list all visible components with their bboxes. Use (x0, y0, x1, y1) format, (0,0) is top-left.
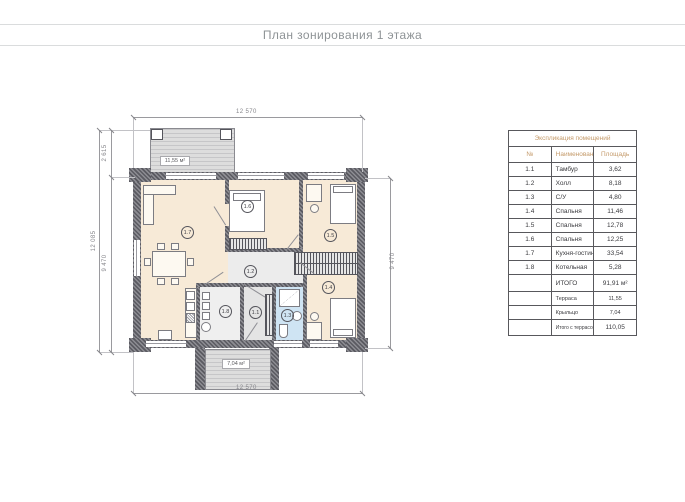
table-row: 1.3 С/У 4,80 (509, 191, 637, 205)
table-row: 1.4 Спальня 11,46 (509, 205, 637, 219)
table-row: 1.2 Холл 8,18 (509, 177, 637, 191)
window (308, 173, 344, 179)
radiator-16 (229, 238, 267, 250)
extension-line (111, 177, 135, 178)
extension-line (365, 178, 391, 179)
col-header-num: № (509, 147, 552, 163)
wall-boiler-top (196, 283, 244, 287)
extension-line (99, 130, 150, 131)
room-marker: 1.5 (324, 229, 337, 242)
pilaster (346, 338, 368, 352)
boiler-unit (202, 292, 210, 300)
extension-line (362, 352, 363, 393)
table-row: 1.6 Спальня 12,25 (509, 233, 637, 247)
window (238, 173, 284, 179)
kitchen-stove (186, 313, 195, 323)
chair (157, 243, 165, 250)
kitchen-sink (158, 330, 172, 340)
room-marker: 1.3 (281, 309, 294, 322)
dim-label-left-upper: 2 615 (102, 142, 108, 164)
desk-chair (310, 312, 319, 321)
terrace-post (220, 129, 232, 140)
dim-line-left-outer (99, 130, 100, 352)
porch (205, 349, 271, 390)
dim-label-left-outer: 12 085 (91, 229, 97, 253)
room-marker: 1.7 (181, 226, 194, 239)
desk-chair (310, 204, 319, 213)
total-label: ИТОГО (551, 275, 594, 292)
room-marker: 1.8 (219, 305, 232, 318)
legend-table: Экспликация помещений № Наименование Пло… (508, 130, 637, 336)
sofa (143, 194, 154, 225)
wall-boiler-tambour (240, 283, 244, 340)
toilet (279, 324, 288, 338)
extension-line (99, 352, 133, 353)
chair (171, 243, 179, 250)
extra-row: Терраса 11,55 (509, 292, 637, 306)
boiler-unit (202, 302, 210, 310)
porch-wall-left (195, 348, 205, 390)
porch-area-label: 7,04 м² (222, 359, 250, 369)
room-marker: 1.6 (241, 200, 254, 213)
boiler-unit (201, 322, 211, 332)
dim-label-bottom: 12 570 (236, 385, 257, 391)
shower (279, 289, 300, 307)
dining-table (152, 251, 186, 277)
table-row: 1.5 Спальня 12,78 (509, 219, 637, 233)
col-header-area: Площадь (594, 147, 637, 163)
grand-total-value: 110,05 (594, 320, 637, 336)
extension-line (365, 348, 391, 349)
pilaster (346, 168, 368, 182)
boiler-unit (202, 312, 210, 320)
room-marker: 1.4 (322, 281, 335, 294)
dim-line-left-inner (111, 130, 112, 352)
terrace-area-label: 11,55 м² (160, 156, 190, 166)
wall-right (357, 172, 365, 348)
dim-label-right: 9 470 (390, 250, 396, 272)
dim-label-left-lower: 9 470 (102, 252, 108, 274)
table-row: 1.7 Кухня-гостиная 33,54 (509, 247, 637, 261)
window (274, 341, 302, 347)
chair (157, 278, 165, 285)
chair (144, 258, 151, 266)
total-row: ИТОГО 91,91 м² (509, 275, 637, 292)
dim-line-bottom (133, 393, 363, 394)
dim-label-top: 12 570 (236, 109, 257, 115)
legend-title: Экспликация помещений (509, 131, 637, 147)
room-marker: 1.2 (244, 265, 257, 278)
window (134, 240, 140, 276)
extra-row: Крыльцо 7,04 (509, 306, 637, 320)
extension-line (133, 352, 134, 393)
bed-pillow (333, 329, 353, 336)
extension-line (362, 117, 363, 172)
grand-total-label: Итого с террасой и крыльцом (551, 320, 594, 336)
extension-line (133, 117, 134, 168)
kitchen-appliance (186, 302, 195, 311)
table-row: 1.8 Котельная 5,28 (509, 261, 637, 275)
window (310, 341, 338, 347)
window (166, 173, 216, 179)
grand-total-row: Итого с террасой и крыльцом 110,05 (509, 320, 637, 336)
dim-line-top (133, 117, 363, 118)
radiator-tambour (265, 294, 274, 336)
legend-header-row: № Наименование Площадь (509, 147, 637, 163)
pilaster (129, 168, 151, 182)
kitchen-appliance (186, 291, 195, 300)
room-marker: 1.1 (249, 306, 262, 319)
total-value: 91,91 м² (594, 275, 637, 292)
col-header-name: Наименование (551, 147, 594, 163)
legend-title-row: Экспликация помещений (509, 131, 637, 147)
terrace-post (151, 129, 163, 140)
bed-pillow (333, 186, 353, 193)
chair (187, 258, 194, 266)
chair (171, 278, 179, 285)
wall-16-15 (299, 180, 303, 252)
window (146, 341, 186, 347)
table-row: 1.1 Тамбур 3,62 (509, 163, 637, 177)
desk (306, 184, 322, 202)
desk (306, 322, 322, 340)
